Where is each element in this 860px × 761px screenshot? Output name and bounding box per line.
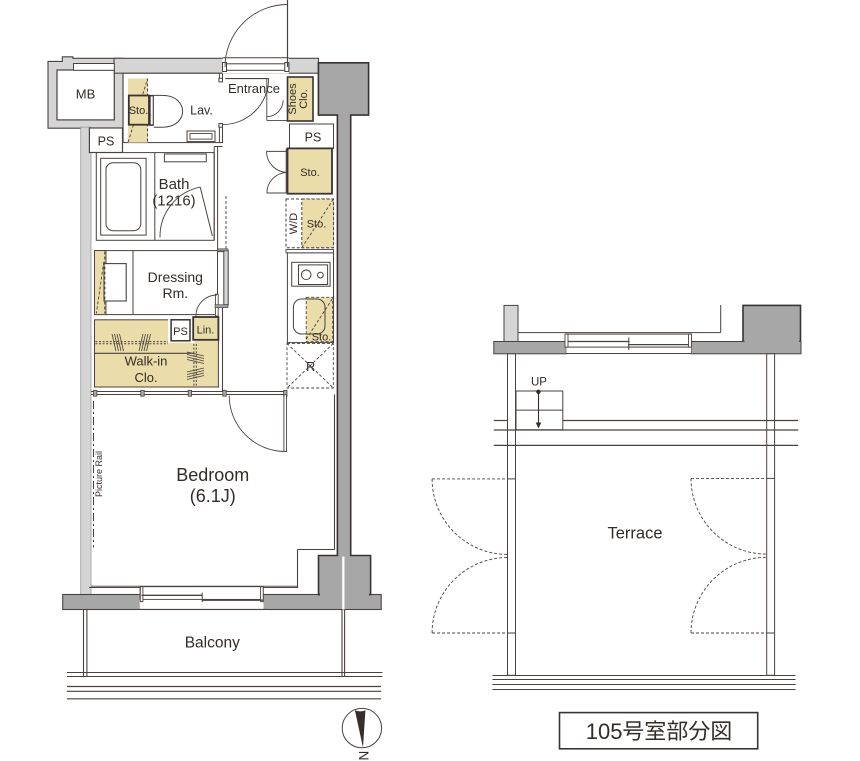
svg-text:PS: PS bbox=[98, 135, 115, 149]
svg-text:(6.1J): (6.1J) bbox=[190, 486, 236, 506]
svg-text:N: N bbox=[356, 751, 371, 761]
svg-text:W/D: W/D bbox=[288, 213, 300, 234]
svg-text:Balcony: Balcony bbox=[185, 635, 240, 652]
svg-text:Sto.: Sto. bbox=[129, 105, 149, 117]
svg-text:Sto.: Sto. bbox=[300, 167, 320, 179]
svg-text:Lin.: Lin. bbox=[197, 325, 215, 337]
svg-text:Entrance: Entrance bbox=[228, 81, 280, 96]
svg-text:Sto.: Sto. bbox=[307, 219, 327, 231]
svg-text:MB: MB bbox=[76, 86, 96, 101]
svg-text:105: 105 bbox=[586, 719, 623, 744]
svg-text:Walk-in: Walk-in bbox=[125, 353, 168, 368]
svg-text:(1216): (1216) bbox=[152, 192, 195, 209]
svg-text:Bath: Bath bbox=[159, 176, 190, 193]
svg-text:Dressing: Dressing bbox=[148, 269, 203, 285]
svg-text:Clo.: Clo. bbox=[134, 370, 157, 385]
svg-text:Sto.: Sto. bbox=[312, 332, 332, 344]
svg-text:Rm.: Rm. bbox=[162, 285, 188, 301]
svg-text:Bedroom: Bedroom bbox=[176, 465, 249, 485]
svg-text:UP: UP bbox=[531, 377, 547, 389]
svg-text:R: R bbox=[306, 360, 315, 374]
svg-text:PS: PS bbox=[173, 326, 188, 338]
svg-text:Picture Rail: Picture Rail bbox=[94, 451, 104, 497]
svg-text:Clo.: Clo. bbox=[298, 89, 310, 109]
svg-text:PS: PS bbox=[305, 131, 322, 145]
svg-text:Terrace: Terrace bbox=[607, 525, 662, 543]
svg-text:Shoes: Shoes bbox=[287, 83, 299, 115]
svg-text:Lav.: Lav. bbox=[190, 104, 213, 118]
